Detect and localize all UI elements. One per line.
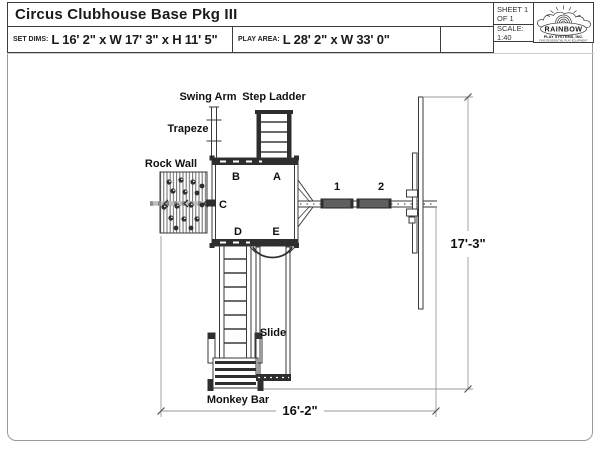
deck-position-c: C (219, 199, 227, 211)
plan-view-drawing: Swing Arm Step Ladder Trapeze Rock Wall … (0, 0, 600, 458)
monkey-bar-structure (208, 246, 264, 391)
dimension-lines (161, 97, 473, 417)
label-slide: Slide (260, 327, 286, 339)
label-rock-wall: Rock Wall (145, 158, 197, 170)
swing-position-2: 2 (378, 181, 384, 193)
step-ladder-structure (255, 110, 293, 158)
label-monkey-bar: Monkey Bar (207, 394, 270, 406)
dimension-height: 17'-3" (450, 236, 485, 251)
slide-structure (256, 247, 291, 381)
deck-position-b: B (232, 171, 240, 183)
deck-position-d: D (234, 226, 242, 238)
deck-position-a: A (273, 171, 281, 183)
swing-position-1: 1 (334, 181, 340, 193)
label-swing-arm: Swing Arm (179, 91, 236, 103)
dimension-ticks (158, 94, 472, 415)
dimension-width: 16'-2" (282, 403, 317, 418)
label-trapeze: Trapeze (168, 123, 209, 135)
swing-frame-legs (407, 97, 424, 309)
drawing-sheet: Circus Clubhouse Base Pkg III SHEET 1 OF… (0, 0, 600, 458)
label-step-ladder: Step Ladder (242, 91, 306, 103)
swing-seat-2 (357, 199, 392, 209)
swing-arm-beam (207, 107, 222, 158)
deck-position-e: E (272, 226, 279, 238)
swing-seat-1 (321, 199, 354, 209)
